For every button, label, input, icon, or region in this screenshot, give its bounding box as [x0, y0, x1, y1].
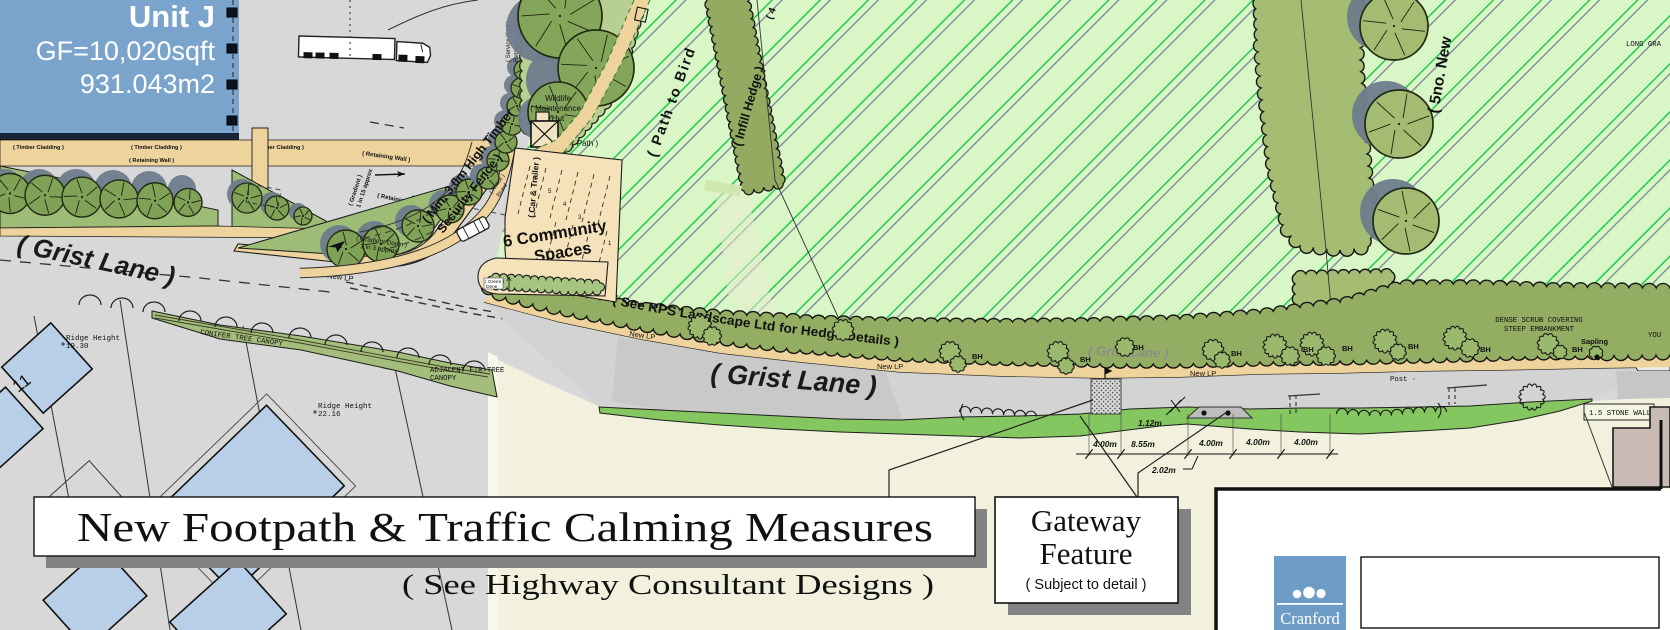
svg-text:4.00m: 4.00m	[1245, 437, 1270, 447]
svg-text:Cranford: Cranford	[1280, 609, 1340, 628]
svg-text:BH: BH	[1480, 345, 1491, 354]
svg-text:ADJACENT FIR TREE: ADJACENT FIR TREE	[430, 367, 504, 375]
svg-text:22.16: 22.16	[318, 411, 341, 419]
svg-text:19.30: 19.30	[66, 343, 89, 351]
svg-text:4.00m: 4.00m	[1092, 439, 1117, 449]
svg-text:BH: BH	[1303, 345, 1314, 354]
svg-text:YOU: YOU	[1648, 332, 1661, 340]
svg-text:Wildlife: Wildlife	[545, 94, 571, 103]
svg-text:BH: BH	[972, 352, 983, 361]
svg-text:Sapling: Sapling	[1581, 337, 1609, 346]
svg-text:( Timber Cladding ): ( Timber Cladding )	[131, 145, 182, 151]
svg-text:BH: BH	[1231, 349, 1242, 358]
svg-text:Ridge Height: Ridge Height	[66, 335, 120, 343]
svg-text:BH: BH	[1133, 343, 1144, 352]
svg-text:( See Highway Consultant Desig: ( See Highway Consultant Designs )	[402, 569, 934, 601]
svg-text:New LP: New LP	[1190, 369, 1216, 378]
svg-text:Gateway: Gateway	[1031, 503, 1142, 538]
svg-text:2.02m: 2.02m	[1151, 465, 1176, 475]
svg-text:DENSE SCRUB COVERING: DENSE SCRUB COVERING	[1495, 317, 1583, 325]
svg-text:( Retaining Wall ): ( Retaining Wall )	[129, 158, 174, 164]
svg-text:Hut: Hut	[552, 114, 565, 123]
svg-text:LONG GRA: LONG GRA	[1626, 41, 1662, 49]
svg-text:BH: BH	[1342, 344, 1353, 353]
svg-text:New LP: New LP	[877, 362, 903, 371]
svg-text:Dene: Dene	[486, 284, 498, 290]
svg-text:Ridge Height: Ridge Height	[318, 403, 372, 411]
svg-text:8.55m: 8.55m	[1131, 439, 1155, 449]
svg-text:BH: BH	[1408, 342, 1419, 351]
svg-text:( Subject to detail ): ( Subject to detail )	[1026, 577, 1147, 593]
svg-text:4.00m: 4.00m	[1293, 437, 1318, 447]
svg-text:BH: BH	[1080, 355, 1091, 364]
svg-text:931.043m2: 931.043m2	[80, 69, 215, 99]
svg-text:Feature: Feature	[1040, 536, 1133, 571]
svg-text:STEEP EMBANKMENT: STEEP EMBANKMENT	[1504, 326, 1575, 334]
svg-text:1.12m: 1.12m	[1138, 418, 1162, 428]
svg-text:( Maintenance ): ( Maintenance )	[530, 104, 586, 113]
svg-text:( Path ): ( Path )	[572, 139, 599, 148]
svg-text:1.5 STONE WALL: 1.5 STONE WALL	[1589, 410, 1651, 418]
svg-text:( Timber Cladding ): ( Timber Cladding )	[13, 145, 64, 151]
svg-text:CANOPY: CANOPY	[430, 375, 457, 383]
svg-text:4.00m: 4.00m	[1198, 438, 1223, 448]
svg-text:GF=10,020sqft: GF=10,020sqft	[36, 36, 216, 66]
svg-text:BH: BH	[1572, 345, 1583, 354]
svg-text:Unit J: Unit J	[129, 0, 215, 34]
svg-text:Post ·: Post ·	[1390, 376, 1416, 384]
svg-text:New Footpath & Traffic Calming: New Footpath & Traffic Calming Measures	[77, 504, 933, 550]
